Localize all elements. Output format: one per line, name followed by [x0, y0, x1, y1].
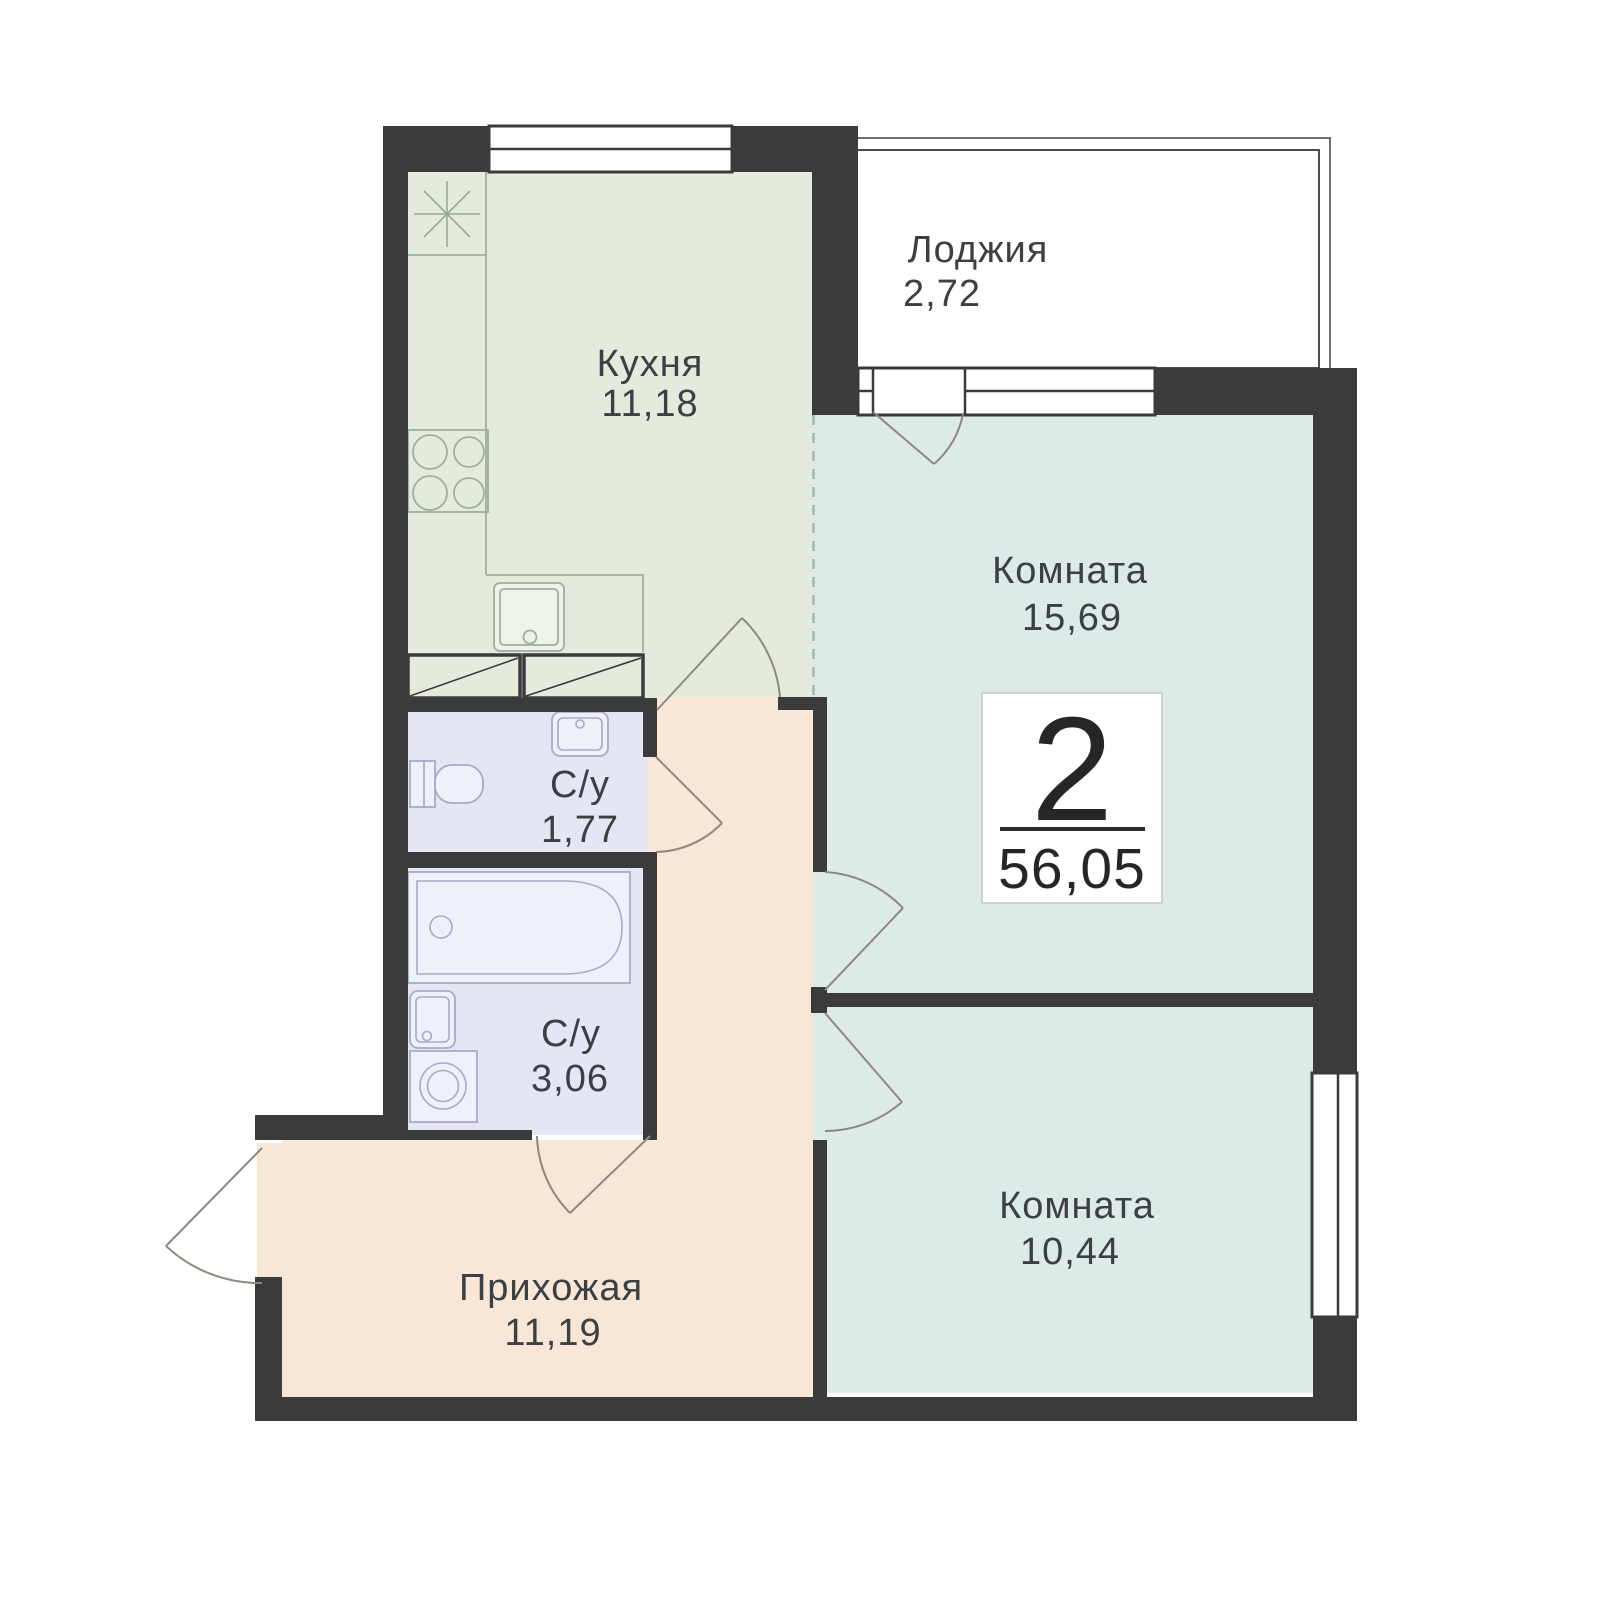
room-second-sill-line: [827, 1393, 1313, 1397]
entry-door-threshold: [257, 1143, 282, 1277]
apartment-badge: 2 56,05: [982, 687, 1162, 903]
ventilation-shaft-icon: [408, 655, 643, 698]
kitchen-sink-icon: [494, 583, 564, 651]
bathroom-small-area: 1,77: [541, 809, 619, 851]
hallway-area: 11,19: [504, 1312, 601, 1354]
room-second-area: 10,44: [1020, 1231, 1120, 1273]
apartment-total-area: 56,05: [998, 837, 1146, 901]
washing-machine-icon: [410, 1051, 477, 1122]
room-main-area: 15,69: [1022, 597, 1122, 639]
kitchen-window: [489, 126, 732, 172]
bathroom-large-sink-icon: [410, 991, 455, 1048]
toilet-icon: [410, 761, 483, 807]
room-second-label: Комната: [999, 1185, 1155, 1227]
bathroom-small-label: С/у: [550, 764, 610, 806]
bathroom-large-label: С/у: [541, 1013, 601, 1055]
kitchen-area: 11,18: [601, 383, 698, 425]
kitchen-floor: [408, 172, 813, 712]
hallway-label: Прихожая: [459, 1267, 643, 1309]
bathtub-icon: [408, 872, 630, 983]
room-second-window: [1312, 1073, 1357, 1317]
bathroom-large-area: 3,06: [531, 1058, 609, 1100]
kitchen-label: Кухня: [597, 343, 704, 385]
floor-plan-drawing: Кухня 11,18 Лоджия 2,72 Комната 15,69 С/…: [0, 0, 1620, 1620]
bathroom-small-sink-icon: [552, 712, 608, 756]
floor-plan-page: Кухня 11,18 Лоджия 2,72 Комната 15,69 С/…: [0, 0, 1620, 1620]
room-main-label: Комната: [992, 550, 1148, 592]
loggia-area: 2,72: [903, 273, 981, 315]
loggia-label: Лоджия: [908, 229, 1049, 271]
balcony-door-window: [858, 368, 1155, 415]
